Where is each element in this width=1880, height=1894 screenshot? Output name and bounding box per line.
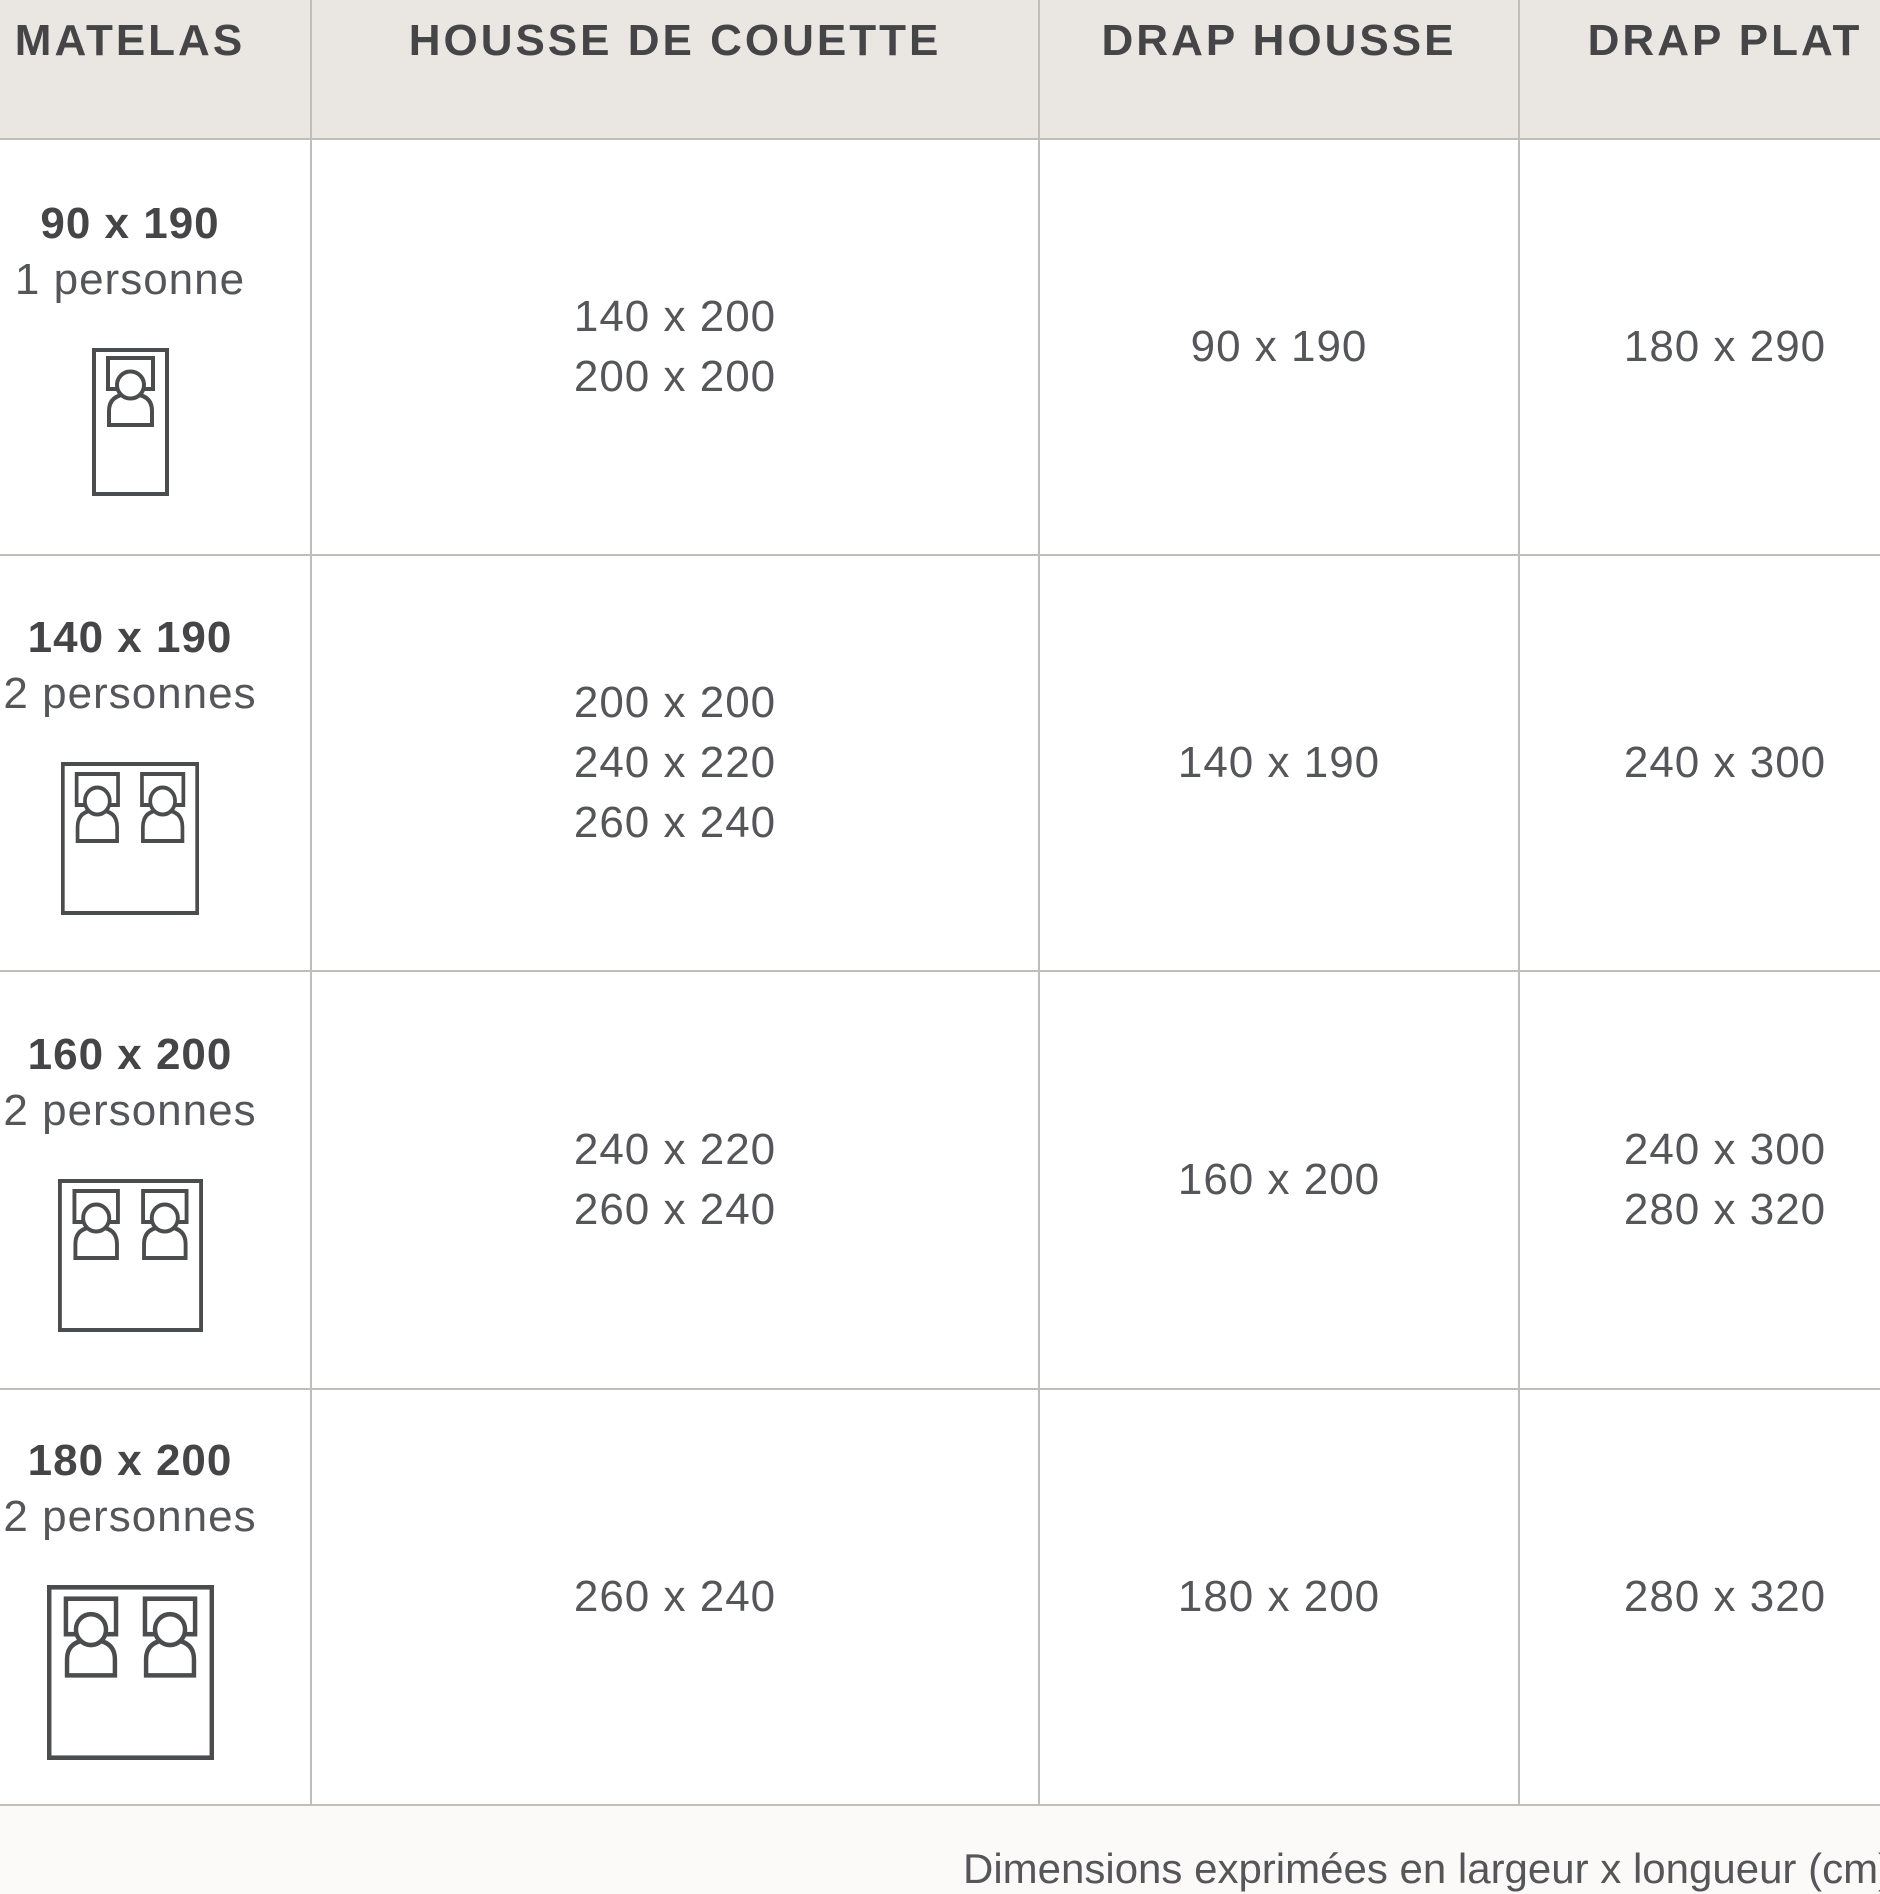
single-bed-icon (92, 348, 169, 496)
housse-de-couette-cell: 200 x 200 240 x 220 260 x 240 (312, 556, 1040, 970)
capacity-label: 2 personnes (3, 668, 256, 720)
double-bed-icon (58, 1179, 203, 1332)
housse-de-couette-cell: 240 x 220 260 x 240 (312, 972, 1040, 1388)
matelas-cell: 180 x 200 2 personnes (0, 1390, 312, 1804)
capacity-label: 1 personne (15, 254, 245, 306)
mattress-size-label: 90 x 190 (40, 198, 219, 250)
dimensions-footnote: Dimensions exprimées en largeur x longue… (963, 1844, 1880, 1894)
column-header-matelas: MATELAS (0, 0, 312, 138)
column-header-drap-housse: DRAP HOUSSE (1040, 0, 1520, 138)
matelas-cell: 90 x 190 1 personne (0, 140, 312, 554)
drap-plat-cell: 180 x 290 (1520, 140, 1880, 554)
double-bed-icon (47, 1585, 214, 1760)
table-row: 180 x 200 2 personnes 260 x 240 180 x 20… (0, 1390, 1880, 1806)
housse-de-couette-cell: 140 x 200 200 x 200 (312, 140, 1040, 554)
capacity-label: 2 personnes (3, 1491, 256, 1543)
table-row: 90 x 190 1 personne 140 x 200 200 x 200 … (0, 140, 1880, 556)
drap-housse-cell: 180 x 200 (1040, 1390, 1520, 1804)
drap-plat-cell: 280 x 320 (1520, 1390, 1880, 1804)
mattress-size-label: 180 x 200 (28, 1435, 233, 1487)
drap-housse-cell: 140 x 190 (1040, 556, 1520, 970)
matelas-cell: 140 x 190 2 personnes (0, 556, 312, 970)
table-header-row: MATELAS HOUSSE DE COUETTE DRAP HOUSSE DR… (0, 0, 1880, 140)
drap-plat-cell: 240 x 300 (1520, 556, 1880, 970)
housse-de-couette-cell: 260 x 240 (312, 1390, 1040, 1804)
column-header-drap-plat: DRAP PLAT (1520, 0, 1880, 138)
mattress-size-label: 140 x 190 (28, 612, 233, 664)
bedding-size-table: MATELAS HOUSSE DE COUETTE DRAP HOUSSE DR… (0, 0, 1880, 1880)
drap-housse-cell: 90 x 190 (1040, 140, 1520, 554)
table-row: 160 x 200 2 personnes 240 x 220 260 x 24… (0, 972, 1880, 1390)
table-row: 140 x 190 2 personnes 200 x 200 240 x 22… (0, 556, 1880, 972)
capacity-label: 2 personnes (3, 1085, 256, 1137)
drap-plat-cell: 240 x 300 280 x 320 (1520, 972, 1880, 1388)
matelas-cell: 160 x 200 2 personnes (0, 972, 312, 1388)
column-header-housse-de-couette: HOUSSE DE COUETTE (312, 0, 1040, 138)
drap-housse-cell: 160 x 200 (1040, 972, 1520, 1388)
mattress-size-label: 160 x 200 (28, 1029, 233, 1081)
table-footer: Dimensions exprimées en largeur x longue… (0, 1806, 1880, 1880)
double-bed-icon (61, 762, 199, 915)
